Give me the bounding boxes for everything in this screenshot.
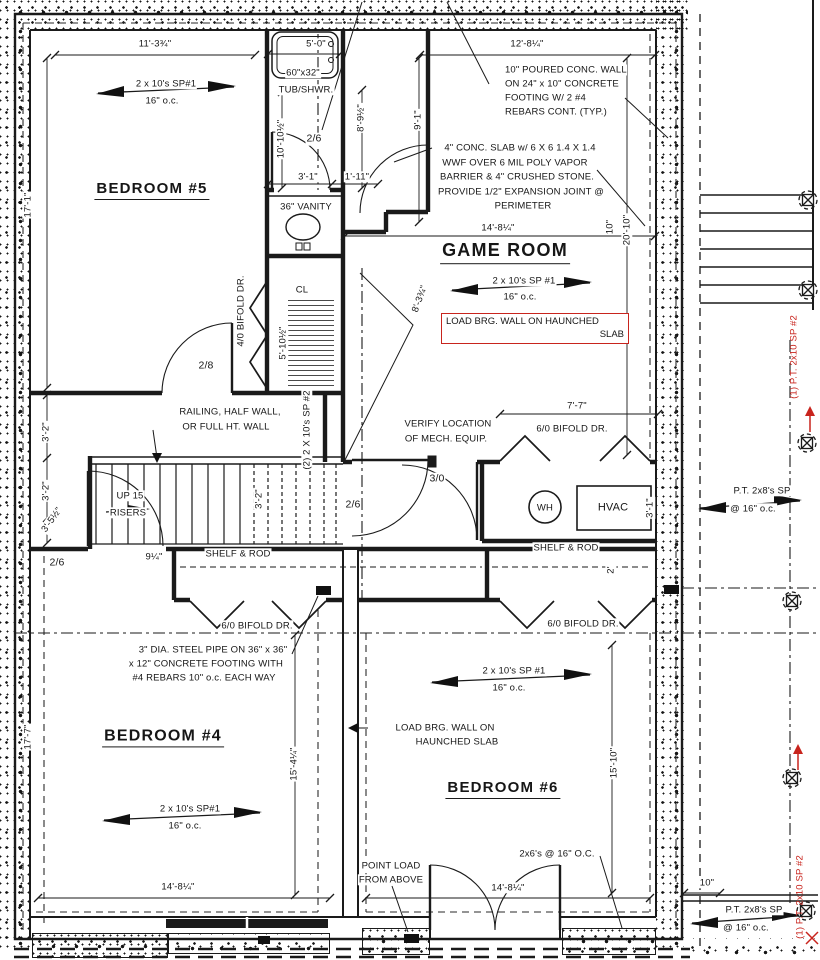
deck: [682, 0, 818, 948]
dim-stair-b: 3'-2": [40, 480, 51, 502]
floor-plan: 11'-3¾" 2 x 10's SP#1 16" o.c. BEDROOM #…: [0, 0, 820, 960]
deck-post-icons: [783, 191, 817, 920]
note-conc-wall-2: ON 24" x 10" CONCRETE: [505, 79, 619, 90]
note-slab-2: WWF OVER 6 MIL POLY VAPOR: [441, 157, 588, 168]
stair-up-label-1: UP 15: [116, 490, 145, 501]
note-slab-4: PROVIDE 1/2" EXPANSION JOINT @: [437, 186, 605, 197]
deck-beam-note-mid: (1) P.T. 2x10 SP #2: [788, 314, 799, 400]
room-label-gameroom: GAME ROOM: [440, 240, 570, 264]
joist-spacing-gameroom: 16" o.c.: [502, 291, 537, 302]
dim-bedroom4-height: 17'-7": [22, 723, 33, 750]
dim-wall-10: 10": [604, 219, 615, 235]
dim-closet-height: 5'-10½": [277, 325, 288, 360]
note-conc-wall-1: 10" POURED CONC. WALL: [505, 65, 627, 76]
water-heater-label: WH: [536, 502, 554, 513]
dim-stair-a: 3'-2": [40, 421, 51, 443]
load-bearing-wall-callout: LOAD BRG. WALL ON HAUNCHED SLAB: [441, 313, 629, 344]
dim-shelf-left: 9¼": [144, 551, 163, 562]
load-bearing-callout-line1: LOAD BRG. WALL ON HAUNCHED: [446, 315, 624, 328]
note-pipe-2: x 12" CONCRETE FOOTING WITH: [128, 658, 284, 669]
vanity-label: 36" VANITY: [279, 201, 333, 212]
room-label-bedroom5: BEDROOM #5: [94, 180, 209, 200]
bifold-left-label: 6/0 BIFOLD DR.: [220, 620, 293, 631]
dim-shelf-right: 2': [605, 565, 616, 574]
note-railing-1: RAILING, HALF WALL,: [178, 406, 281, 417]
joist-label-gameroom: 2 x 10's SP #1: [492, 275, 557, 286]
door-label-bath: 2/6: [305, 133, 322, 146]
note-slab-5: PERIMETER: [494, 200, 553, 211]
note-2x6-ceiling: 2x6's @ 16" O.C.: [518, 848, 595, 859]
tub-label: TUB/SHWR.: [278, 84, 335, 95]
dim-bedroom5-width: 11'-3¾": [138, 38, 172, 49]
note-load-wall-1: LOAD BRG. WALL ON: [395, 722, 496, 733]
room-label-bedroom4: BEDROOM #4: [102, 726, 224, 747]
note-pipe-1: 3" DIA. STEEL PIPE ON 36" x 36": [138, 644, 289, 655]
closet-label: CL: [295, 284, 309, 295]
dim-mech-width: 7'-7": [566, 400, 588, 411]
stair-up-label-2: RISERS: [109, 507, 147, 518]
note-load-wall-2: HAUNCHED SLAB: [415, 736, 500, 747]
dim-bedroom4-right-height: 15'-4¼": [288, 746, 299, 781]
dim-bedroom5-height: 17'-1": [22, 191, 33, 218]
joist-arrows: [96, 81, 802, 928]
footing-dashes: [14, 949, 690, 957]
dim-gameroom-top-width: 12'-8¼": [509, 38, 544, 49]
dim-bedroom6-height: 15'-10": [608, 747, 619, 780]
bifold-right-label: 6/0 BIFOLD DR.: [546, 618, 619, 629]
note-conc-wall-3: FOOTING W/ 2 #4: [505, 93, 586, 104]
centerlines: [15, 34, 818, 903]
load-bearing-callout-line2: SLAB: [446, 328, 624, 341]
dim-nook: 1'-11": [344, 171, 370, 182]
joist-spacing-bedroom5: 16" o.c.: [144, 95, 179, 106]
deck-joist-label-2: P.T. 2x8's SP: [725, 904, 784, 915]
hvac-label: HVAC: [597, 501, 629, 514]
shelf-rod-right-label: SHELF & ROD: [533, 542, 600, 553]
door-label-mech: 3/0: [428, 473, 445, 486]
bifold-mech-label: 6/0 BIFOLD DR.: [535, 423, 608, 434]
dim-stair-d: 3'-2": [253, 488, 264, 510]
note-railing-2: OR FULL HT. WALL: [181, 421, 270, 432]
tub-size-label: 60"x32": [285, 67, 321, 78]
dim-hvac-depth: 3'-1": [644, 497, 655, 519]
note-point-load-2: FROM ABOVE: [358, 874, 424, 885]
shelf-rod-left-label: SHELF & ROD: [205, 548, 272, 559]
dimension-lines: [34, 50, 724, 902]
dim-bath-height: 10'-10½": [275, 119, 286, 160]
dim-bath-width: 5'-0": [305, 38, 327, 49]
dim-gameroom-width: 14'-8¼": [480, 222, 515, 233]
dim-bath-door: 3'-1": [297, 171, 319, 182]
dim-gameroom-height: 20'-10": [621, 214, 632, 247]
bifold-closet-label: 4/0 BIFOLD DR.: [235, 274, 246, 347]
note-slab-3: BARRIER & 4" CRUSHED STONE.: [439, 171, 595, 182]
dim-bedroom6-width: 14'-8¼": [490, 882, 525, 893]
door-label-bedroom5: 2/8: [197, 360, 214, 373]
dim-bedroom4-width: 14'-8¼": [160, 881, 195, 892]
dim-chase-height: 8'-9½": [355, 103, 366, 133]
plan-linework: [0, 0, 820, 960]
note-verify-1: VERIFY LOCATION: [404, 418, 493, 429]
deck-joist-spacing-1: @ 16" o.c.: [729, 503, 777, 514]
note-slab-1: 4" CONC. SLAB w/ 6 X 6 1.4 X 1.4: [443, 142, 596, 153]
joist-spacing-bedroom4: 16" o.c.: [167, 820, 202, 831]
note-point-load-1: POINT LOAD: [361, 860, 422, 871]
load-bearing-wall: [343, 549, 358, 917]
door-label-bedroom4: 2/6: [48, 557, 65, 570]
joist-label-bedroom5: 2 x 10's SP#1: [135, 78, 197, 89]
note-pipe-3: #4 REBARS 10" o.c. EACH WAY: [131, 672, 276, 683]
note-conc-wall-4: REBARS CONT. (TYP.): [505, 107, 607, 118]
joist-label-stair: (2) 2 X 10's SP #2: [301, 389, 312, 470]
note-verify-2: OF MECH. EQUIP.: [404, 433, 488, 444]
door-label-hall: 2/6: [344, 499, 361, 512]
joist-label-bedroom6: 2 x 10's SP #1: [482, 665, 547, 676]
room-label-bedroom6: BEDROOM #6: [445, 779, 560, 799]
deck-beam-note-bottom: (1) P.T. 2x10 SP #2: [794, 854, 805, 940]
dim-gameroom-left-height: 9'-1": [412, 109, 423, 131]
joist-label-bedroom4: 2 x 10's SP#1: [159, 803, 221, 814]
dim-deck-10: 10": [699, 877, 715, 888]
joist-spacing-bedroom6: 16" o.c.: [491, 682, 526, 693]
deck-joist-spacing-2: @ 16" o.c.: [722, 922, 770, 933]
deck-joist-label-1: P.T. 2x8's SP: [733, 485, 792, 496]
window-bedroom4: [166, 917, 328, 930]
